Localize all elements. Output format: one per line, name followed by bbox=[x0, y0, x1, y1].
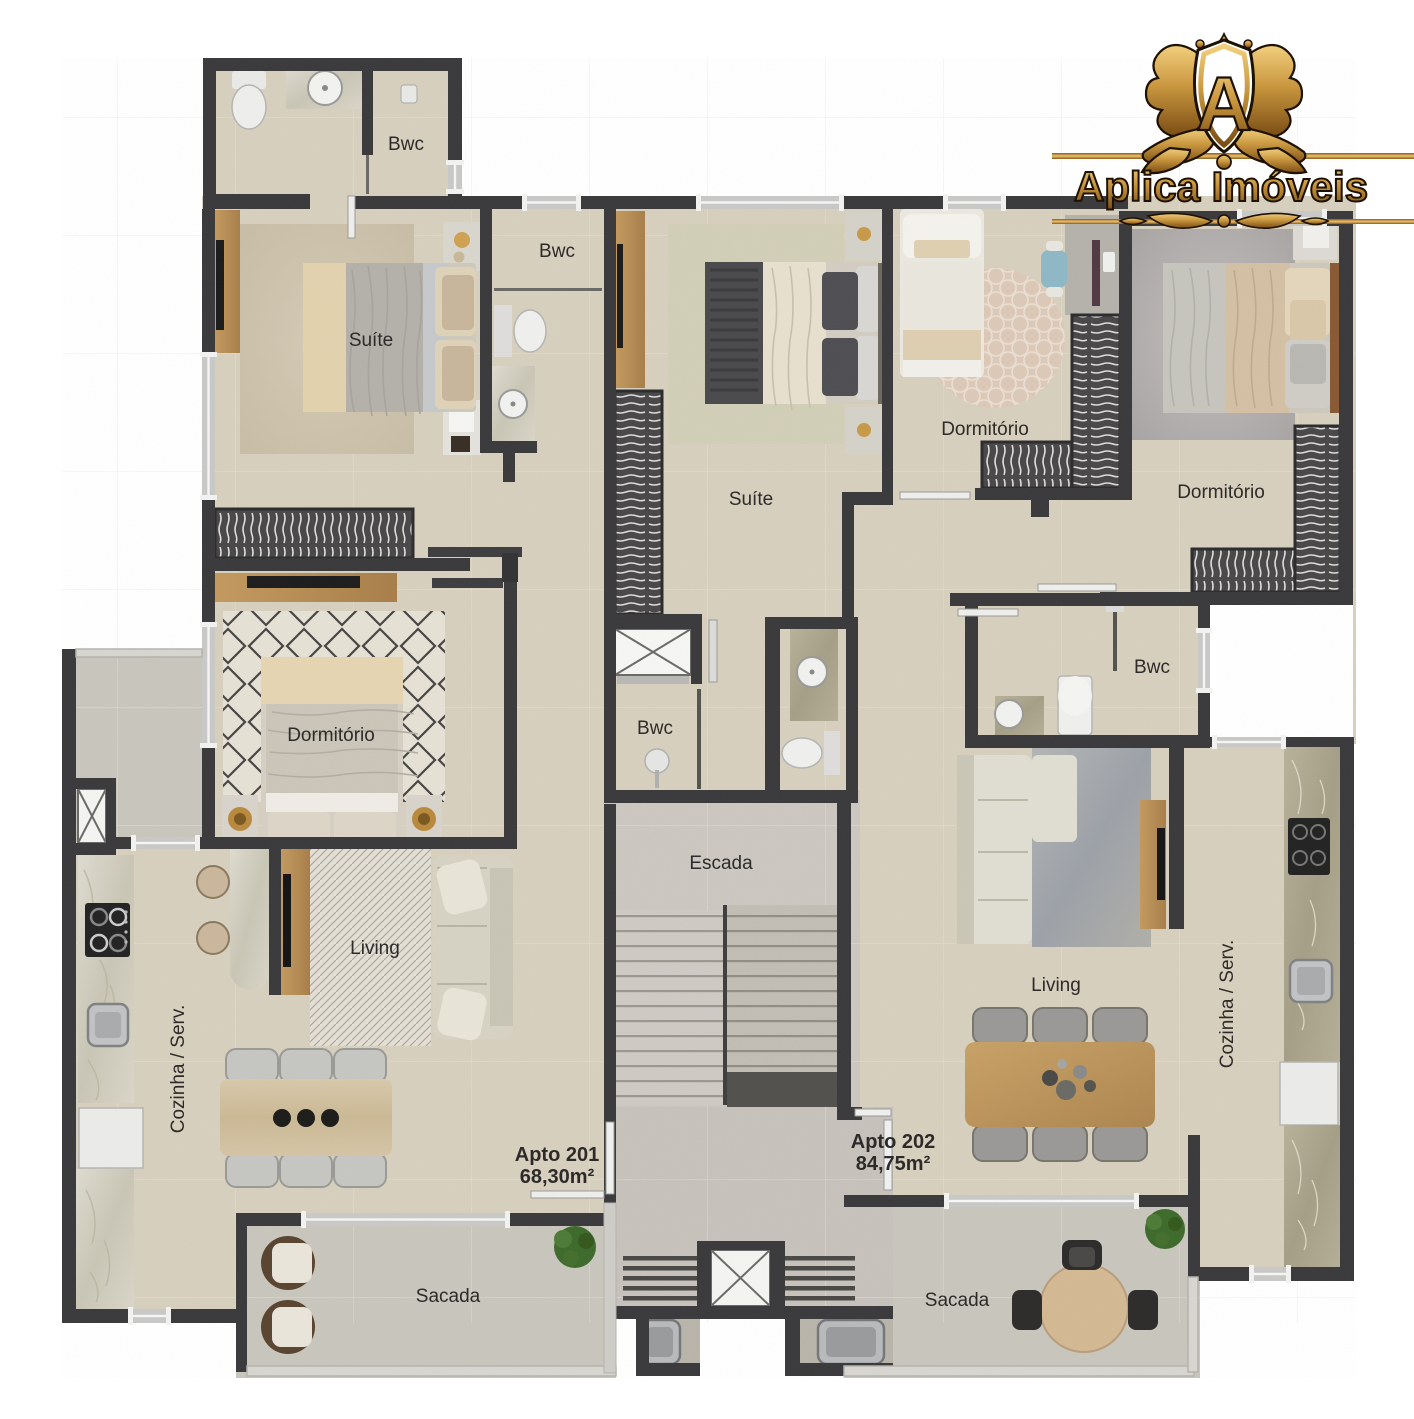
svg-text:Apto 201: Apto 201 bbox=[515, 1144, 599, 1166]
svg-text:84,75m²: 84,75m² bbox=[856, 1153, 931, 1175]
svg-text:A: A bbox=[1197, 62, 1252, 147]
svg-text:Living: Living bbox=[350, 938, 400, 959]
svg-text:Bwc: Bwc bbox=[539, 241, 575, 262]
svg-text:Cozinha / Serv.: Cozinha / Serv. bbox=[1217, 940, 1238, 1068]
svg-text:Cozinha / Serv.: Cozinha / Serv. bbox=[168, 1005, 189, 1133]
svg-text:Sacada: Sacada bbox=[925, 1290, 990, 1311]
svg-text:Dormitório: Dormitório bbox=[287, 725, 375, 746]
svg-text:Escada: Escada bbox=[689, 853, 753, 874]
svg-text:Living: Living bbox=[1031, 975, 1081, 996]
svg-text:Dormitório: Dormitório bbox=[941, 419, 1029, 440]
svg-text:Suíte: Suíte bbox=[349, 330, 393, 351]
svg-text:Sacada: Sacada bbox=[416, 1286, 481, 1307]
svg-text:Suíte: Suíte bbox=[729, 489, 773, 510]
svg-text:Bwc: Bwc bbox=[1134, 657, 1170, 678]
svg-text:Bwc: Bwc bbox=[637, 718, 673, 739]
svg-text:68,30m²: 68,30m² bbox=[520, 1166, 595, 1188]
svg-text:Aplica Imóveis: Aplica Imóveis bbox=[1074, 163, 1368, 210]
svg-text:Dormitório: Dormitório bbox=[1177, 482, 1265, 503]
svg-text:Bwc: Bwc bbox=[388, 134, 424, 155]
svg-text:Apto 202: Apto 202 bbox=[851, 1131, 935, 1153]
